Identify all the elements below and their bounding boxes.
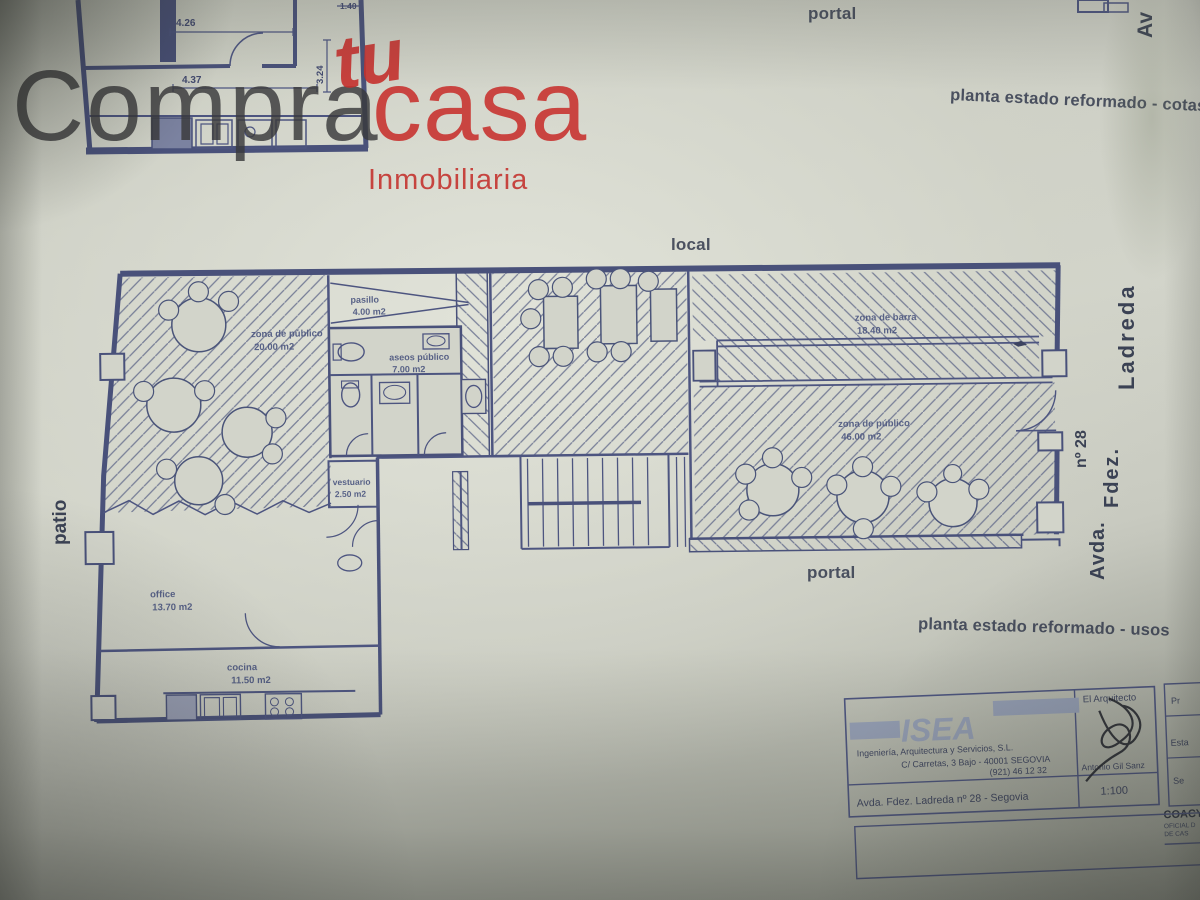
- main-floor-plan: zona de público 20.00 m2 pasillo 4.00 m2…: [82, 262, 1070, 722]
- room-label: vestuario: [333, 477, 371, 487]
- side-label: Se: [1173, 775, 1184, 785]
- patio-label: patio: [50, 500, 71, 545]
- dim-label: 4.26: [176, 18, 196, 29]
- wall-pilaster: [100, 354, 124, 380]
- dim-label: 1.40: [340, 1, 357, 11]
- room-area: 18.40 m2: [857, 325, 897, 336]
- room-label: office: [150, 589, 175, 600]
- room-label: pasillo: [350, 295, 379, 305]
- room-area: 20.00 m2: [254, 342, 294, 353]
- side-label: Pr: [1171, 696, 1180, 706]
- room-area: 7.00 m2: [392, 364, 425, 374]
- room-label: cocina: [227, 662, 258, 673]
- title-block: ISEA Ingeniería, Arquitectura y Servicio…: [845, 682, 1200, 879]
- logo-word-compra: Compra: [12, 56, 380, 156]
- sink-fixture: [338, 555, 362, 571]
- room-area: 13.70 m2: [152, 602, 192, 613]
- room-area: 11.50 m2: [231, 675, 271, 686]
- title-block-empty-box: [855, 812, 1200, 878]
- room-label: zona de barra: [855, 312, 918, 324]
- street-ladreda-label: Ladreda: [1114, 283, 1139, 390]
- room-area: 46.00 m2: [841, 431, 881, 442]
- portal-bottom-label: portal: [807, 563, 855, 582]
- wall-pilaster: [91, 696, 115, 720]
- project-address: Avda. Fdez. Ladreda nº 28 - Segovia: [857, 791, 1029, 810]
- street-fdez-label: Fdez.: [1101, 447, 1123, 508]
- stairs: [520, 454, 685, 549]
- logo-word-casa: casa: [372, 56, 587, 156]
- local-label: local: [671, 235, 711, 254]
- isea-logo-text: ISEA: [900, 710, 976, 749]
- upper-plan-fragment: [1078, 0, 1128, 12]
- logo-subtitle-inmobiliaria: Inmobiliaria: [368, 166, 528, 195]
- street-number-label: nº 28: [1073, 430, 1090, 468]
- isea-logo: ISEA: [849, 698, 1081, 751]
- stamp-line: OFICIAL D: [1164, 822, 1196, 830]
- office-door-arc: [245, 613, 279, 647]
- plan-title-cotas: planta estado reformado - cotas: [950, 86, 1200, 115]
- portal-top-label: portal: [808, 4, 856, 23]
- title-block-side-column: Pr Esta Se: [1164, 682, 1200, 806]
- side-label: Esta: [1170, 737, 1188, 748]
- firm-phone: (921) 46 12 32: [989, 765, 1047, 777]
- wall-pilaster: [85, 532, 113, 564]
- drawing-scale: 1:100: [1100, 785, 1128, 798]
- architect-name: Antonio Gil Sanz: [1081, 760, 1145, 773]
- photographed-floorplan-document: 4.26 4.37 3.24 1.40 portal Av planta est…: [0, 0, 1200, 900]
- street-avda-label: Avda.: [1087, 521, 1109, 580]
- avenue-top-label: Av: [1134, 12, 1157, 38]
- pillar: [693, 350, 715, 380]
- stamp-line: DE CAS: [1164, 830, 1189, 838]
- room-label: zona de público: [838, 418, 910, 430]
- plan-title-usos: planta estado reformado - usos: [918, 615, 1170, 640]
- room-label: aseos público: [389, 352, 450, 363]
- room-label: zona de público: [251, 328, 323, 340]
- room-area: 4.00 m2: [353, 306, 386, 316]
- room-area: 2.50 m2: [335, 489, 367, 499]
